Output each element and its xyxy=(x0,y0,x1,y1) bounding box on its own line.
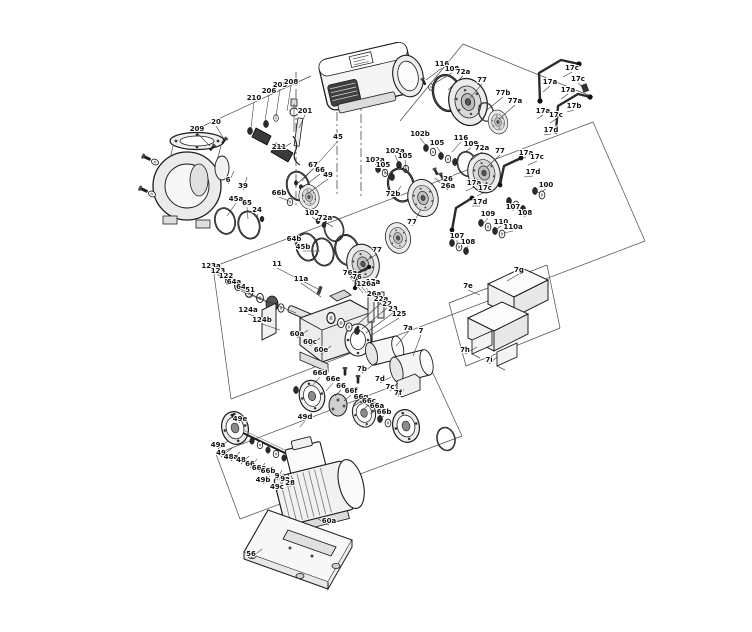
part-label: 49b xyxy=(256,476,271,484)
part-label: 60e xyxy=(314,346,329,354)
leader-line xyxy=(543,86,550,92)
part-label: 7a xyxy=(403,324,413,332)
part-label: 126a xyxy=(356,280,376,288)
leader-line xyxy=(426,68,442,80)
bracket-group xyxy=(468,268,548,370)
part-label: 72a xyxy=(456,68,471,76)
part-label: 24 xyxy=(252,206,262,214)
leader-line xyxy=(437,147,441,153)
part-label: 209 xyxy=(190,125,205,133)
coupling-sleeves xyxy=(363,335,435,397)
part-label: 64b xyxy=(287,235,302,243)
part-label: 72a xyxy=(475,144,490,152)
leader-line xyxy=(300,421,305,427)
part-label: 17a xyxy=(543,78,558,86)
part-label: 49e xyxy=(233,415,248,423)
part-label: 9 xyxy=(275,472,280,480)
part-label: 125 xyxy=(392,310,407,318)
leader-line xyxy=(561,94,568,99)
part-label: 20 xyxy=(211,118,221,126)
controller-unit xyxy=(317,39,427,116)
part-label: 17b xyxy=(567,102,582,110)
diagram-art: 209202102062052082012116394567664945a652… xyxy=(0,0,752,632)
part-label: 124a xyxy=(238,306,258,314)
part-label: 105 xyxy=(430,139,445,147)
part-label: 7 xyxy=(419,327,424,335)
part-label: 72a xyxy=(318,214,333,222)
part-label: 7h xyxy=(460,346,470,354)
part-label: 7i xyxy=(485,356,492,364)
leader-line xyxy=(528,161,537,165)
part-label: 56 xyxy=(246,550,256,558)
part-label: 17c xyxy=(571,75,585,83)
leader-line xyxy=(468,290,480,295)
leader-line xyxy=(487,97,503,110)
part-label: 60c xyxy=(303,338,317,346)
leader-line xyxy=(287,86,291,111)
part-label: 17c xyxy=(549,111,563,119)
part-label: 109 xyxy=(481,210,496,218)
leader-line xyxy=(265,95,269,121)
part-label: 201 xyxy=(298,107,313,115)
part-label: 49c xyxy=(270,483,284,491)
part-label: 210 xyxy=(247,94,262,102)
part-label: 17a xyxy=(561,86,576,94)
part-label: 77 xyxy=(477,76,487,84)
part-label: 11 xyxy=(272,260,282,268)
part-label: 108 xyxy=(461,238,476,246)
leader-line xyxy=(537,115,543,119)
leader-line xyxy=(326,383,333,391)
part-label: 17d xyxy=(544,126,559,134)
part-label: 124b xyxy=(252,316,272,324)
part-label: 211 xyxy=(272,143,287,151)
part-label: 45b xyxy=(296,243,311,251)
leader-line xyxy=(504,231,513,233)
part-label: 17d xyxy=(473,198,488,206)
part-label: 66b xyxy=(261,467,276,475)
leader-line xyxy=(544,134,551,135)
leader-line xyxy=(276,89,280,116)
part-label: 26a xyxy=(441,182,456,190)
leader-line xyxy=(251,102,254,128)
leader-line xyxy=(452,142,461,152)
leader-line xyxy=(247,207,248,219)
part-label: 108 xyxy=(518,209,533,217)
part-label: 77 xyxy=(407,218,417,226)
part-label: 17c xyxy=(565,64,579,72)
part-label: 6 xyxy=(226,176,231,184)
part-label: 7f xyxy=(394,389,403,397)
part-label: 7b xyxy=(357,365,367,373)
part-label: 66b xyxy=(377,408,392,416)
part-label: 77 xyxy=(372,246,382,254)
part-label: 66b xyxy=(272,189,287,197)
part-label: 7g xyxy=(514,266,524,274)
leader-line xyxy=(279,197,289,201)
part-label: 77a xyxy=(508,97,523,105)
part-label: 60a xyxy=(290,330,305,338)
leader-line xyxy=(466,187,474,191)
part-label: 17c xyxy=(478,184,492,192)
part-label: 17d xyxy=(526,168,541,176)
part-label: 102b xyxy=(410,130,430,138)
part-label: 7e xyxy=(463,282,473,290)
seal-kit-top xyxy=(420,72,510,136)
part-label: 49d xyxy=(298,413,313,421)
part-label: 17c xyxy=(530,153,544,161)
part-label: 105 xyxy=(376,161,391,169)
part-label: 45 xyxy=(333,133,343,141)
part-label: 49 xyxy=(323,171,333,179)
leader-line xyxy=(567,110,574,112)
part-label: 110a xyxy=(503,223,523,231)
sensor-valve-assembly xyxy=(208,99,303,165)
part-label: 65 xyxy=(242,199,252,207)
part-label: 100 xyxy=(539,181,554,189)
part-label: 7d xyxy=(375,375,385,383)
part-label: 49a xyxy=(211,441,226,449)
part-label: 60a xyxy=(322,517,337,525)
part-label: 51 xyxy=(245,286,255,294)
part-label: 77 xyxy=(495,147,505,155)
exploded-diagram-canvas: 209202102062052082012116394567664945a652… xyxy=(0,0,752,632)
part-label: 11a xyxy=(294,275,309,283)
part-label: 208 xyxy=(284,78,299,86)
part-label: 39 xyxy=(238,182,248,190)
leader-line xyxy=(524,176,533,177)
part-label: 72b xyxy=(386,190,401,198)
part-label: 28 xyxy=(285,479,295,487)
leader-line xyxy=(477,192,485,196)
leader-line xyxy=(550,119,556,123)
part-label: 77b xyxy=(496,89,511,97)
part-label: 105 xyxy=(398,152,413,160)
